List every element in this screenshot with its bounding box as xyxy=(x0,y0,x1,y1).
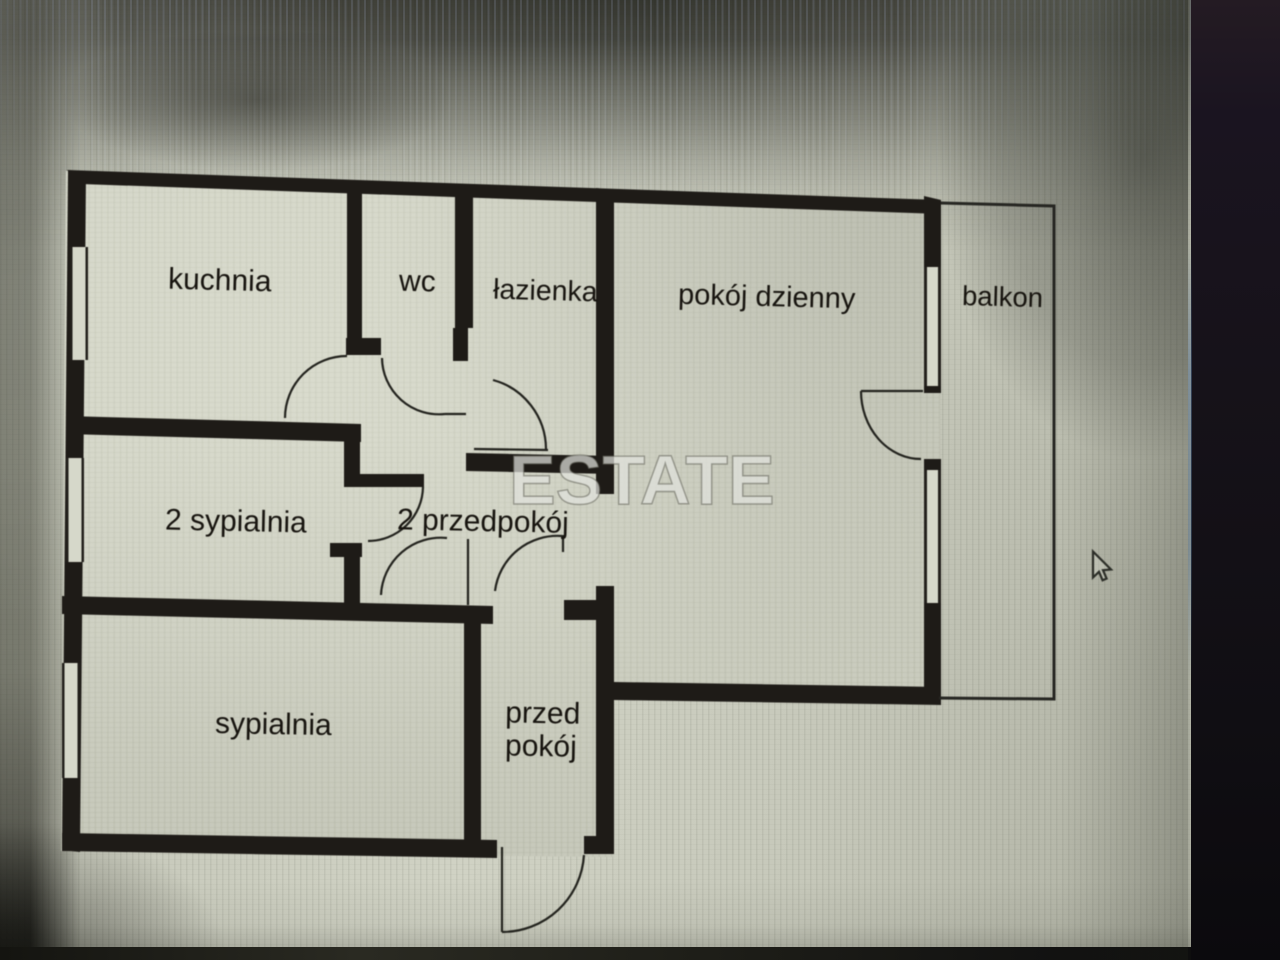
svg-text:kuchnia: kuchnia xyxy=(168,263,273,299)
svg-text:pokój dzienny: pokój dzienny xyxy=(678,279,857,316)
svg-text:łazienka: łazienka xyxy=(493,274,599,309)
svg-text:ESTATE: ESTATE xyxy=(509,441,775,519)
svg-text:przed: przed xyxy=(505,696,581,730)
svg-text:sypialnia: sypialnia xyxy=(215,707,333,742)
svg-text:pokój: pokój xyxy=(505,729,577,763)
svg-text:2 sypialnia: 2 sypialnia xyxy=(165,504,308,540)
svg-text:wc: wc xyxy=(398,265,437,299)
svg-text:balkon: balkon xyxy=(962,280,1044,313)
